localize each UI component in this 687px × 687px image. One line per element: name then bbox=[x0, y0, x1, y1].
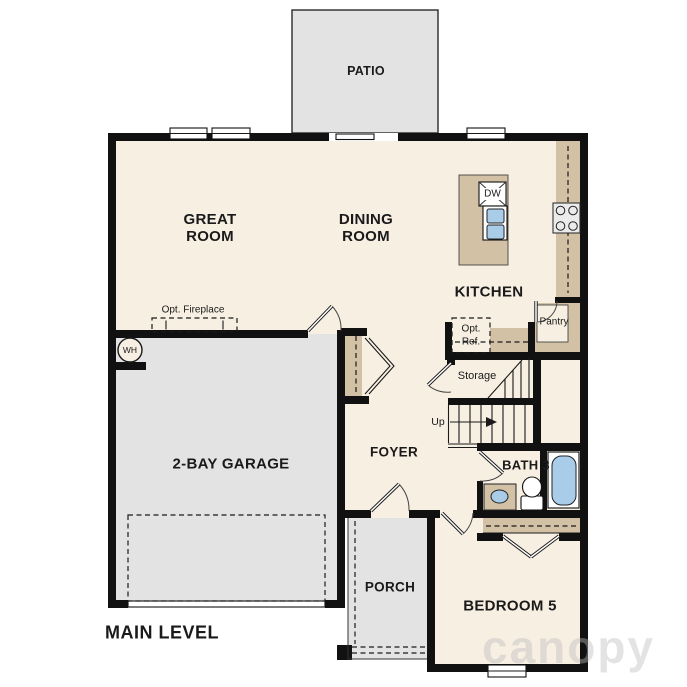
porch-post bbox=[337, 645, 352, 660]
toilet-icon bbox=[521, 477, 543, 510]
wh-wall-jut bbox=[108, 362, 146, 370]
window-icon bbox=[212, 128, 250, 139]
room-label-pantry: Pantry bbox=[540, 317, 569, 328]
room-label-bath3: BATH 3 bbox=[502, 458, 550, 473]
room-label-bedroom5: BEDROOM 5 bbox=[463, 598, 557, 615]
room-label-patio: PATIO bbox=[347, 64, 385, 78]
stove-icon bbox=[553, 203, 580, 233]
water-heater-label: WH bbox=[123, 345, 137, 355]
floor-plan: PATIO GREAT ROOM DINING ROOM KITCHEN 2-B… bbox=[0, 0, 687, 687]
up-label: Up bbox=[431, 416, 444, 428]
vanity-sink-icon bbox=[484, 484, 516, 510]
floor-plan-drawing bbox=[0, 0, 687, 687]
window-icon bbox=[467, 128, 505, 139]
window-icon bbox=[170, 128, 207, 139]
watermark: canopy bbox=[482, 620, 655, 674]
room-label-storage: Storage bbox=[458, 370, 497, 382]
garage-door-icon bbox=[128, 601, 325, 607]
plan-title: MAIN LEVEL bbox=[105, 623, 219, 644]
room-label-foyer: FOYER bbox=[370, 445, 418, 460]
room-label-kitchen: KITCHEN bbox=[455, 284, 524, 301]
room-label-garage: 2-BAY GARAGE bbox=[171, 456, 291, 473]
opt-fireplace-label: Opt. Fireplace bbox=[162, 305, 225, 316]
bathtub-icon bbox=[548, 452, 579, 508]
dishwasher-label: DW bbox=[484, 189, 501, 200]
sink-icon bbox=[483, 206, 507, 240]
opt-ref-label-line1: Opt. bbox=[462, 324, 481, 335]
room-label-porch: PORCH bbox=[365, 580, 415, 595]
sliding-door-icon bbox=[329, 133, 398, 141]
room-label-dining-room: DINING ROOM bbox=[316, 211, 416, 245]
ref-counter bbox=[490, 328, 528, 352]
foyer-closet-shelf bbox=[345, 334, 362, 396]
room-label-great-room: GREAT ROOM bbox=[160, 211, 260, 245]
opt-ref-label-line2: Ref. bbox=[462, 337, 480, 348]
